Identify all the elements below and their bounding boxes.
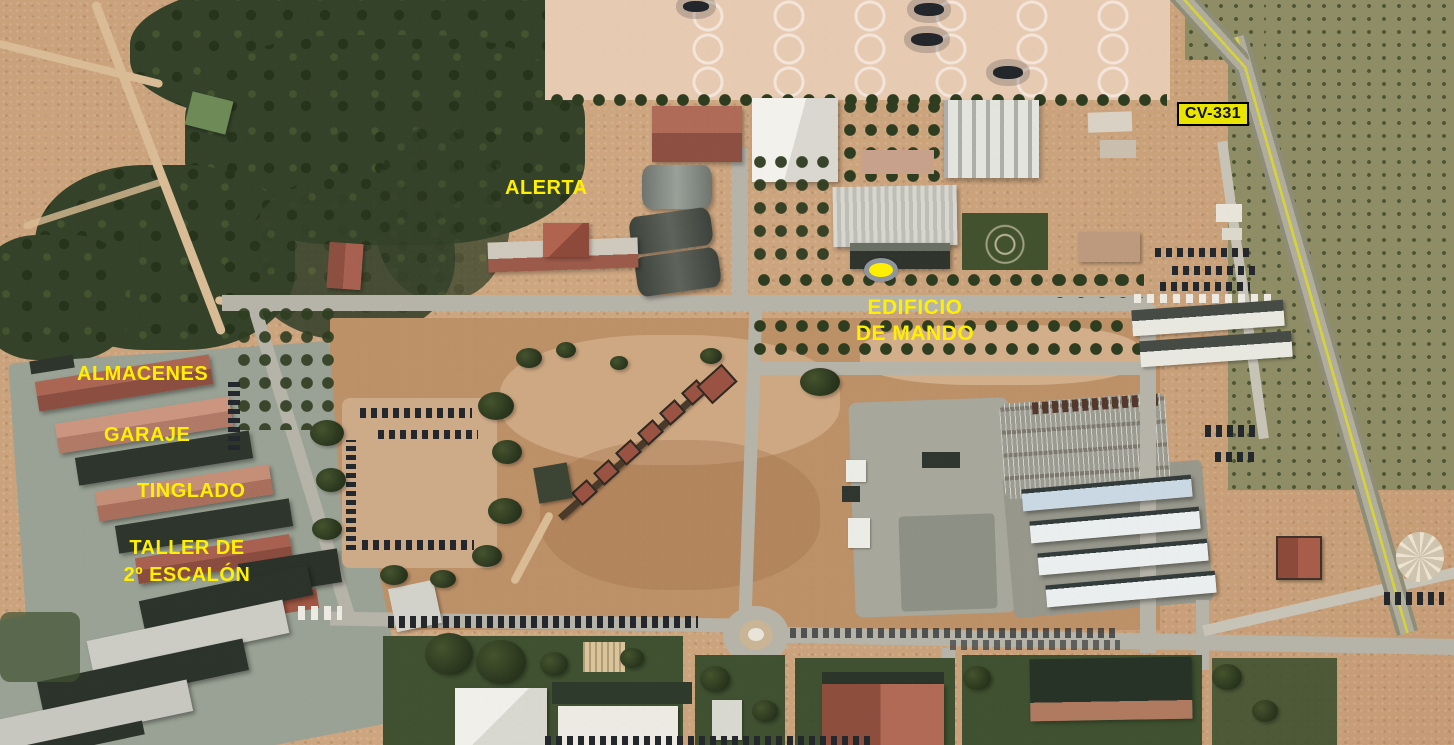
tree xyxy=(430,570,456,588)
truck-row-white xyxy=(298,606,342,620)
garden-circular-paths xyxy=(962,213,1048,270)
car-row xyxy=(1160,282,1250,291)
tree xyxy=(488,498,522,524)
car-row xyxy=(1384,592,1444,605)
label-taller: TALLER DE 2º ESCALÓN xyxy=(97,535,277,589)
building-small-white xyxy=(848,518,870,548)
forest-patch xyxy=(375,125,510,300)
road-main xyxy=(222,295,1152,311)
tree xyxy=(556,342,576,358)
label-edificio-de-mando: EDIFICIO DE MANDO xyxy=(830,295,1000,347)
tree xyxy=(310,420,344,446)
tree xyxy=(752,700,778,722)
star-pavement xyxy=(1396,532,1444,582)
label-taller-line1: TALLER DE xyxy=(97,535,277,562)
building-small-dark xyxy=(842,486,860,502)
building-ribbed-roof xyxy=(832,185,957,247)
helicopter-icon xyxy=(993,66,1023,79)
tree xyxy=(316,468,346,492)
tree xyxy=(472,545,502,567)
building-red-pavilion xyxy=(1276,536,1322,580)
car-row xyxy=(378,430,478,439)
building-dark-strip xyxy=(822,672,944,684)
building-small-white xyxy=(846,460,866,482)
tree xyxy=(516,348,542,368)
building-dark-green-long xyxy=(1029,657,1192,722)
tree xyxy=(610,356,628,370)
car-row xyxy=(790,628,1120,638)
helicopter-icon xyxy=(914,3,944,16)
dirt-dark-patch xyxy=(540,440,820,590)
tree-cluster xyxy=(748,150,833,265)
lawn-patch xyxy=(0,612,80,682)
building-dark-roof xyxy=(552,682,692,704)
tree xyxy=(380,565,408,585)
tree xyxy=(620,648,644,668)
building-small xyxy=(1088,111,1133,133)
car-row xyxy=(360,408,472,418)
label-alerta: ALERTA xyxy=(505,177,588,200)
road-hangars xyxy=(732,148,748,303)
hangar-gray xyxy=(642,165,712,209)
car-row-long xyxy=(388,616,698,628)
bunker-dark xyxy=(533,462,573,503)
car-row xyxy=(228,380,240,450)
satellite-map: ALERTA EDIFICIO DE MANDO ALMACENES GARAJ… xyxy=(0,0,1454,745)
tree xyxy=(963,666,991,690)
tree xyxy=(540,652,568,676)
tree xyxy=(800,368,840,396)
roundabout-center xyxy=(748,628,764,641)
label-tinglado: TINGLADO xyxy=(137,480,245,503)
tree xyxy=(492,440,522,464)
tree xyxy=(1212,664,1242,690)
car-row xyxy=(1172,266,1257,275)
label-edificio-line1: EDIFICIO xyxy=(830,295,1000,321)
building-red-roof xyxy=(326,242,363,290)
edificio-de-mando-marker xyxy=(864,258,898,282)
car-row xyxy=(950,640,1120,650)
building-tan-roof xyxy=(862,150,934,174)
forest-patch xyxy=(0,235,130,360)
label-almacenes: ALMACENES xyxy=(77,363,208,386)
parade-ground-inner xyxy=(898,513,997,611)
car-row xyxy=(1205,425,1255,437)
tree-row xyxy=(1048,268,1143,298)
building-tan-long xyxy=(1078,232,1140,262)
tree xyxy=(476,640,526,684)
building-white-gabled xyxy=(455,688,547,745)
helicopter-icon xyxy=(683,1,709,12)
building-small xyxy=(1100,140,1136,158)
tree xyxy=(700,348,722,364)
tree xyxy=(1252,700,1278,722)
helicopter-icon xyxy=(911,33,943,46)
car-row xyxy=(362,540,474,550)
building-small-white xyxy=(1216,204,1242,222)
building-small-dark xyxy=(922,452,960,468)
tree xyxy=(425,633,473,675)
car-row xyxy=(1215,452,1255,462)
label-edificio-line2: DE MANDO xyxy=(830,321,1000,347)
tree xyxy=(312,518,342,540)
building-small-white xyxy=(1222,228,1242,240)
paved-checker-patch xyxy=(583,642,625,672)
building-small-white xyxy=(712,700,742,740)
tree xyxy=(478,392,514,420)
tree-cluster xyxy=(232,302,342,430)
car-row xyxy=(346,440,356,550)
building-red-roof-large xyxy=(652,106,742,162)
building-gabled-red xyxy=(543,223,589,257)
car-row xyxy=(545,736,875,745)
label-taller-line2: 2º ESCALÓN xyxy=(97,562,277,589)
building-white-hq xyxy=(944,100,1039,178)
label-garaje: GARAJE xyxy=(104,424,190,447)
road-sign-cv331: CV-331 xyxy=(1177,102,1249,126)
car-row xyxy=(1155,248,1250,257)
tree xyxy=(700,666,730,692)
